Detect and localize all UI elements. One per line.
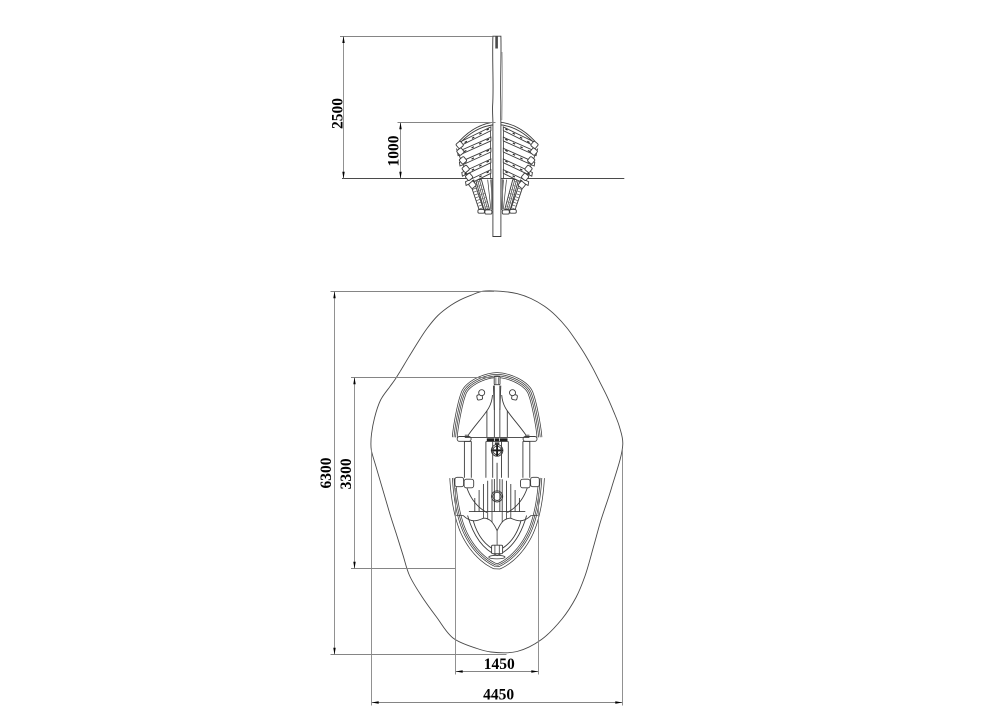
svg-text:2500: 2500 [330, 98, 347, 129]
svg-text:1450: 1450 [484, 656, 515, 673]
svg-text:3300: 3300 [338, 458, 355, 489]
svg-text:6300: 6300 [318, 457, 335, 488]
svg-text:4450: 4450 [483, 687, 514, 704]
svg-text:1000: 1000 [386, 135, 403, 166]
